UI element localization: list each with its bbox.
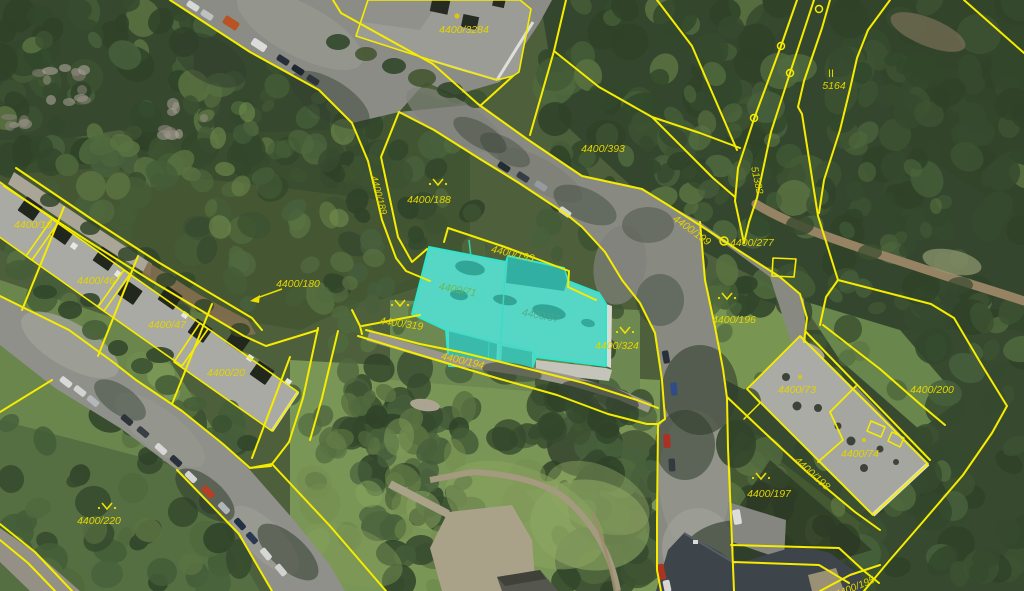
svg-text:4400/46: 4400/46	[77, 275, 115, 287]
svg-text:4400/3284: 4400/3284	[439, 24, 489, 36]
svg-text:4400/180: 4400/180	[276, 278, 320, 290]
svg-text:4400/324: 4400/324	[595, 340, 639, 352]
svg-text:4400/277: 4400/277	[730, 237, 775, 249]
svg-text:5164: 5164	[822, 80, 846, 92]
svg-text:4400/19: 4400/19	[14, 219, 52, 231]
svg-text:4400/200: 4400/200	[910, 384, 954, 396]
svg-text:4400/74: 4400/74	[841, 448, 879, 460]
svg-text:4400/73: 4400/73	[778, 384, 816, 396]
svg-text:II: II	[828, 68, 834, 80]
svg-text:4400/197: 4400/197	[747, 488, 792, 500]
svg-text:4400/393: 4400/393	[581, 143, 625, 155]
svg-text:4400/220: 4400/220	[77, 515, 121, 527]
svg-text:4400/47: 4400/47	[148, 319, 187, 331]
svg-text:4400/188: 4400/188	[407, 194, 451, 206]
svg-text:4400/20: 4400/20	[207, 367, 245, 379]
svg-text:4400/196: 4400/196	[712, 314, 756, 326]
